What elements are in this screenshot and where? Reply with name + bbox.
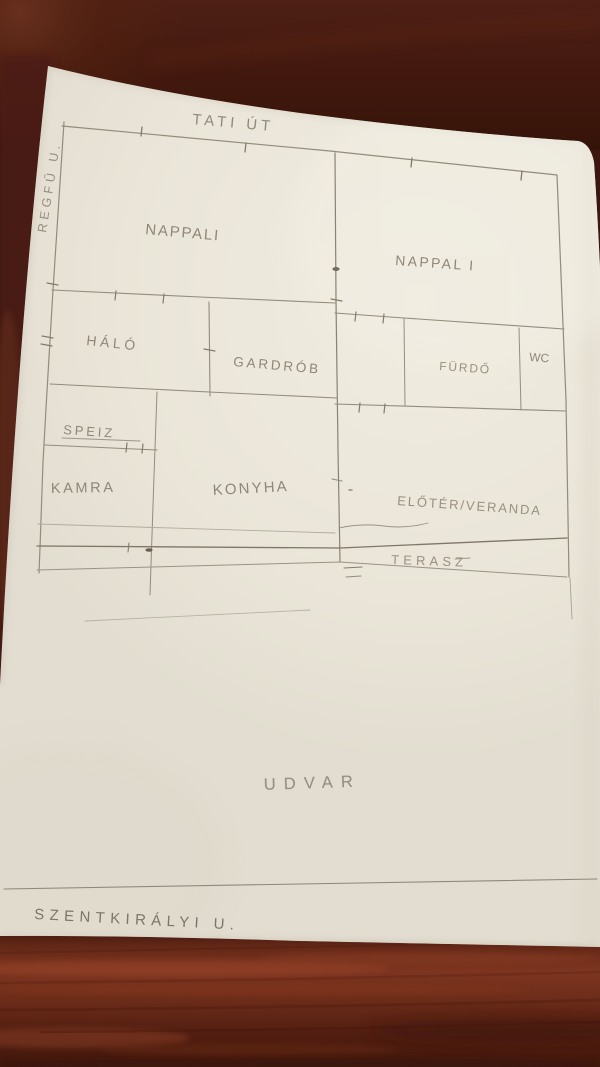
svg-text:WC: WC xyxy=(529,350,550,365)
svg-text:KAMRA: KAMRA xyxy=(51,480,114,497)
